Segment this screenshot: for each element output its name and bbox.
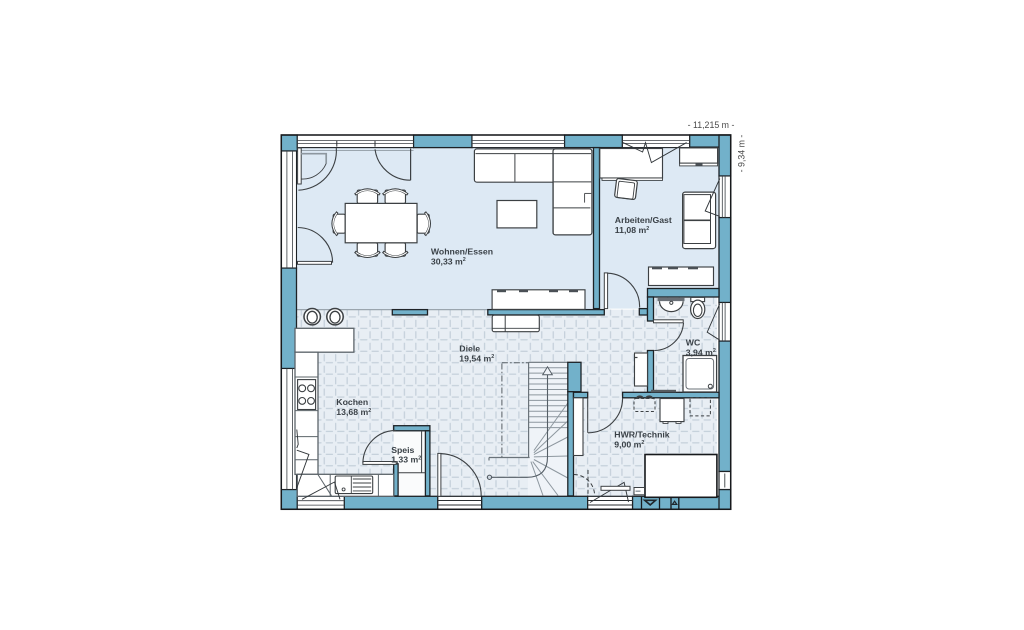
svg-text:11,08 m2: 11,08 m2 bbox=[615, 225, 649, 235]
svg-text:Wohnen/Essen: Wohnen/Essen bbox=[431, 247, 493, 257]
svg-text:Speis: Speis bbox=[391, 445, 414, 455]
svg-text:- 9,34 m -: - 9,34 m - bbox=[737, 135, 747, 173]
svg-text:9,00 m2: 9,00 m2 bbox=[614, 439, 644, 449]
svg-text:HWR/Technik: HWR/Technik bbox=[614, 430, 670, 440]
svg-text:1,33 m2: 1,33 m2 bbox=[391, 455, 421, 465]
svg-text:Kochen: Kochen bbox=[336, 397, 368, 407]
svg-text:19,54 m2: 19,54 m2 bbox=[459, 353, 494, 363]
svg-text:Diele: Diele bbox=[459, 344, 480, 354]
svg-text:3,94 m2: 3,94 m2 bbox=[686, 347, 716, 357]
svg-text:Arbeiten/Gast: Arbeiten/Gast bbox=[615, 215, 672, 225]
svg-text:WC: WC bbox=[686, 338, 701, 348]
svg-text:- 11,215 m -: - 11,215 m - bbox=[688, 120, 735, 130]
svg-text:13,68 m2: 13,68 m2 bbox=[336, 407, 371, 417]
svg-text:30,33 m2: 30,33 m2 bbox=[431, 256, 466, 266]
